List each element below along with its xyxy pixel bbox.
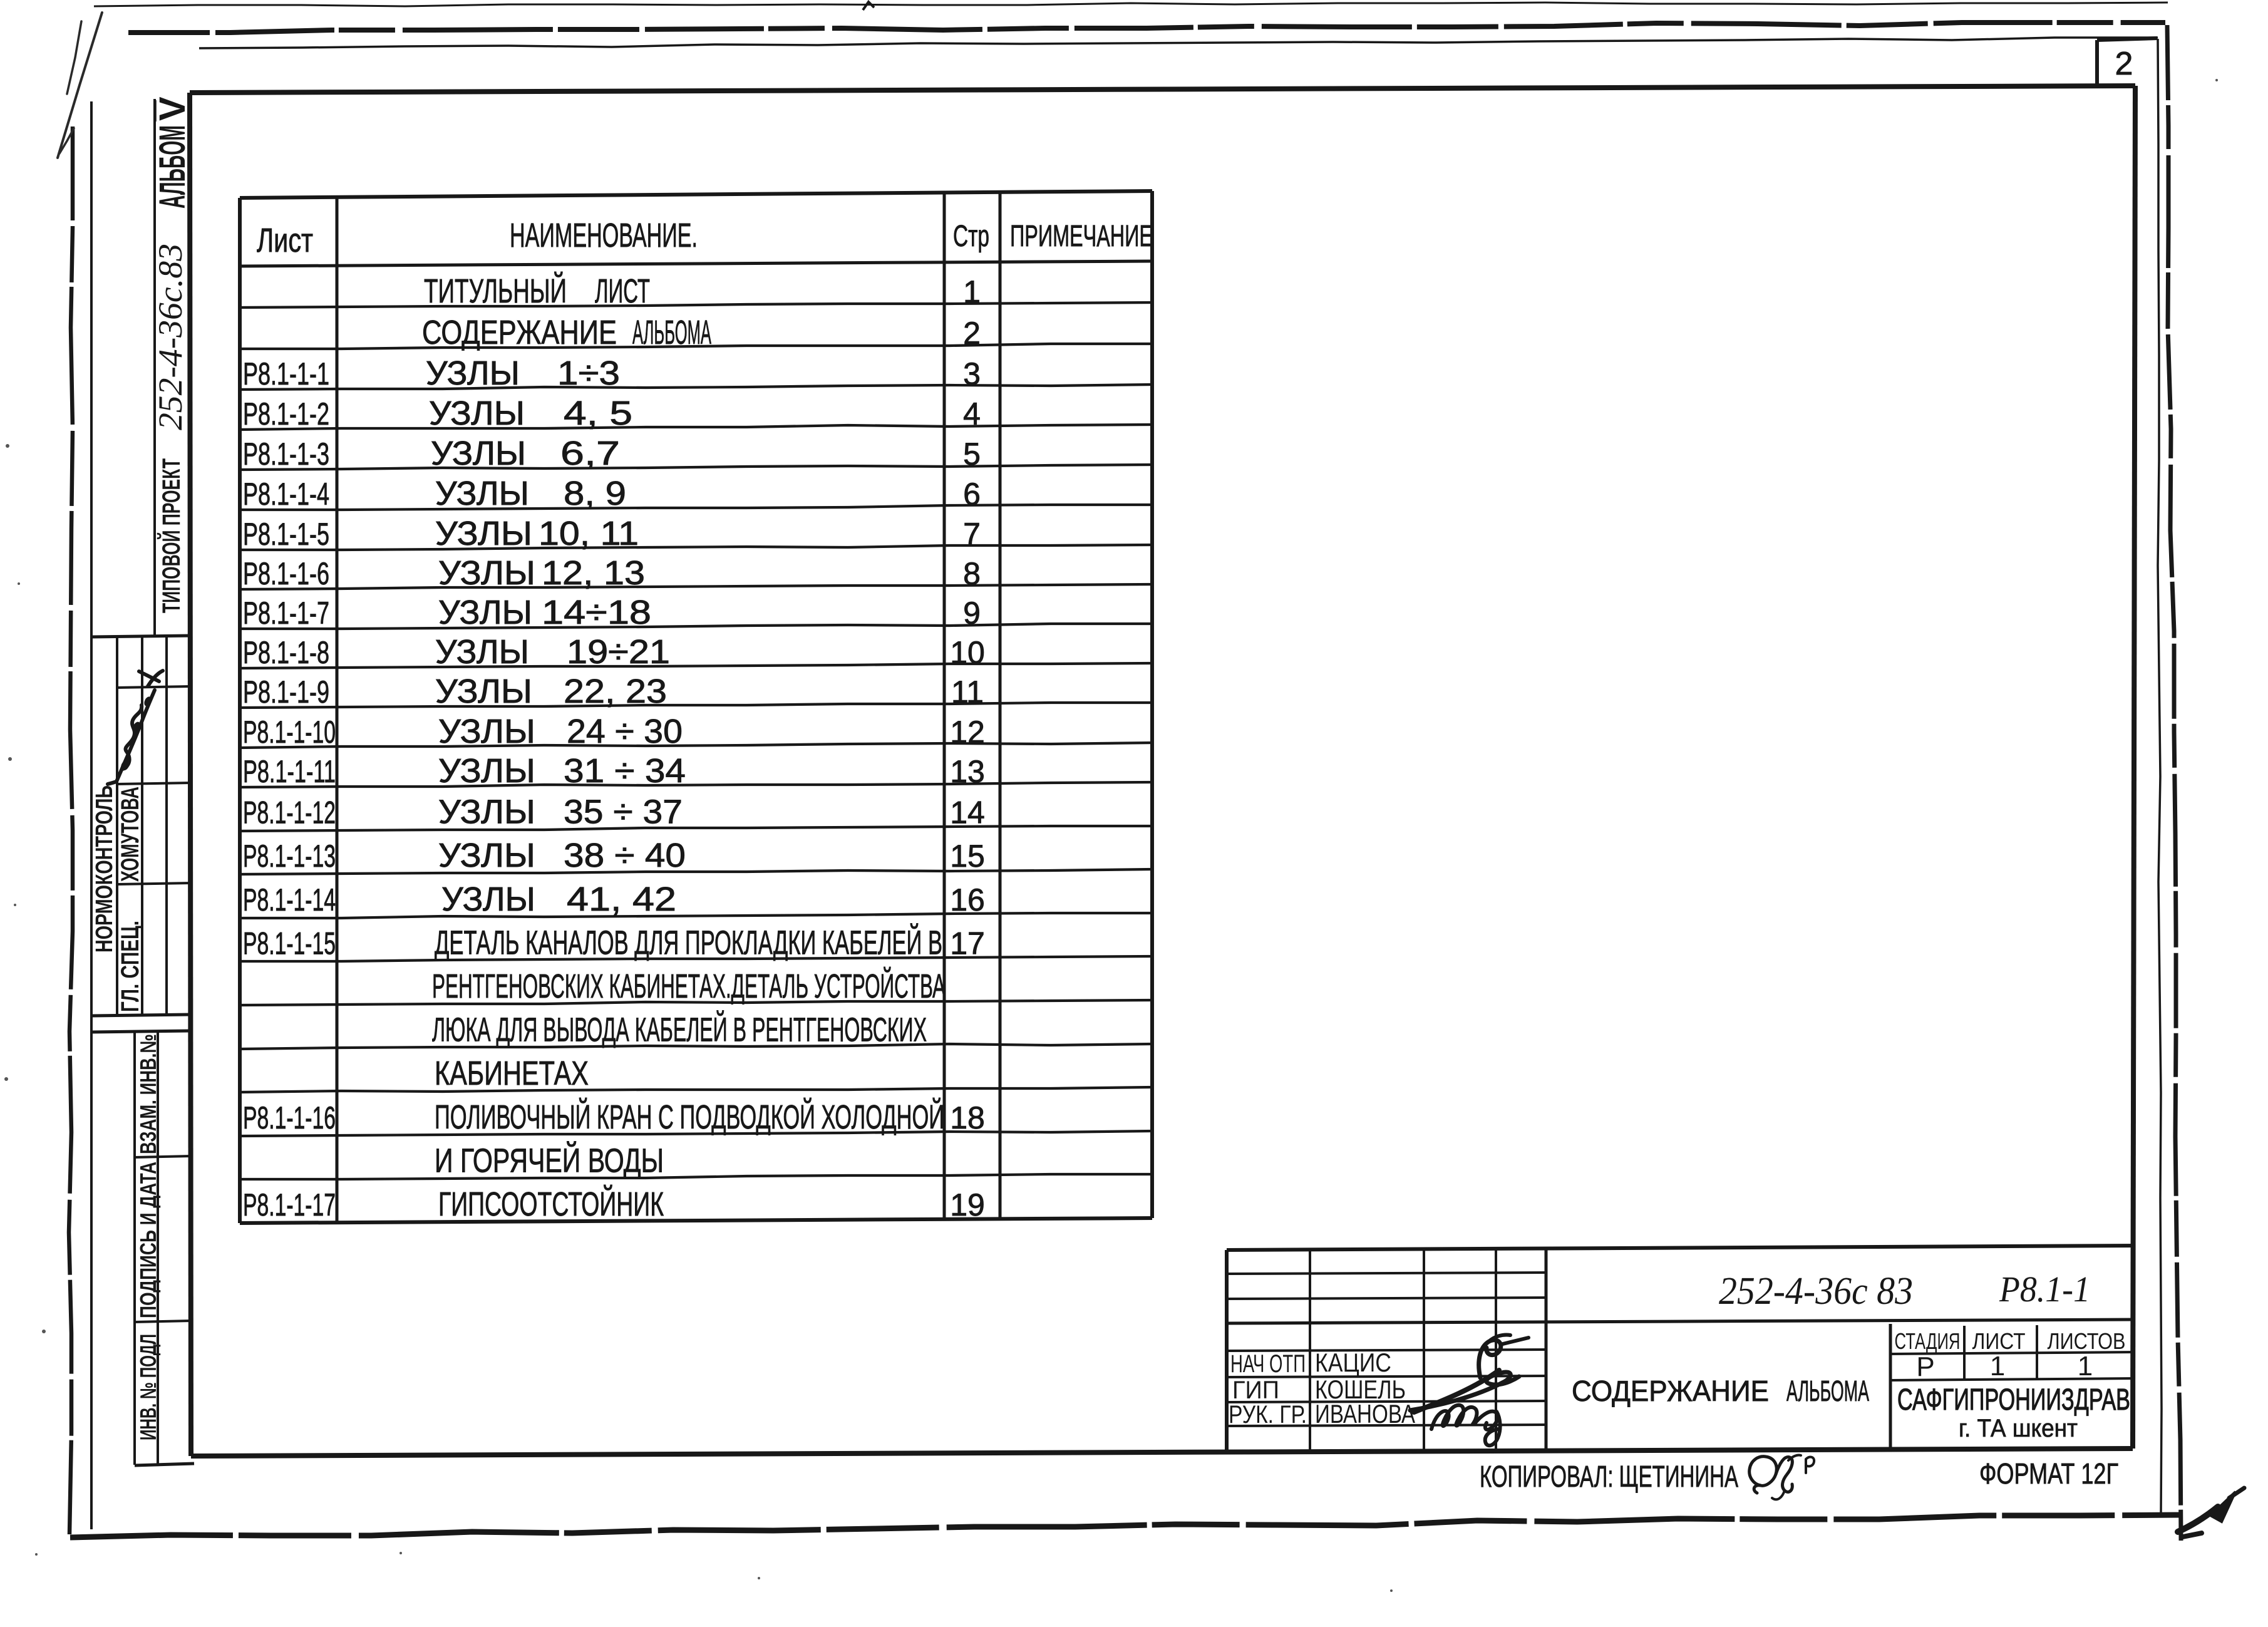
svg-text:ЛЮКА ДЛЯ ВЫВОДА КАБЕЛЕЙ В РЕНТ: ЛЮКА ДЛЯ ВЫВОДА КАБЕЛЕЙ В РЕНТГЕНОВСКИХ [432, 1011, 927, 1049]
svg-text:1: 1 [2078, 1351, 2093, 1382]
svg-text:УЗЛЫ: УЗЛЫ [431, 435, 526, 472]
svg-text:ГИПСООТСТОЙНИК: ГИПСООТСТОЙНИК [438, 1185, 664, 1223]
svg-text:16: 16 [950, 882, 985, 917]
svg-text:19: 19 [950, 1187, 985, 1222]
svg-text:ЛИСТ: ЛИСТ [1972, 1328, 2026, 1354]
svg-text:УЗЛЫ: УЗЛЫ [429, 395, 525, 432]
svg-text:ПРИМЕЧАНИЕ: ПРИМЕЧАНИЕ [1010, 220, 1153, 253]
svg-text:Р8.1-1-16: Р8.1-1-16 [243, 1100, 336, 1135]
svg-text:2: 2 [2115, 46, 2133, 82]
svg-text:УЗЛЫ: УЗЛЫ [435, 515, 532, 552]
svg-text:УЗЛЫ: УЗЛЫ [426, 354, 520, 392]
svg-text:3: 3 [963, 356, 981, 391]
svg-text:УЗЛЫ: УЗЛЫ [438, 594, 532, 631]
svg-text:УЗЛЫ: УЗЛЫ [438, 713, 535, 750]
svg-text:Р8.1-1-4: Р8.1-1-4 [243, 477, 329, 512]
svg-text:14: 14 [950, 795, 985, 830]
svg-text:НАИМЕНОВАНИЕ.: НАИМЕНОВАНИЕ. [510, 217, 698, 254]
svg-text:УЗЛЫ: УЗЛЫ [438, 554, 535, 592]
svg-text:31 ÷ 34: 31 ÷ 34 [564, 752, 686, 790]
svg-text:35 ÷ 37: 35 ÷ 37 [564, 793, 683, 831]
svg-text:И ГОРЯЧЕЙ ВОДЫ: И ГОРЯЧЕЙ ВОДЫ [435, 1141, 664, 1179]
svg-text:4: 4 [963, 396, 981, 431]
svg-text:Р8.1-1-9: Р8.1-1-9 [243, 674, 329, 710]
svg-text:ПОЛИВОЧНЫЙ КРАН С ПОДВОДКОЙ ХО: ПОЛИВОЧНЫЙ КРАН С ПОДВОДКОЙ ХОЛОДНОЙ [435, 1098, 944, 1136]
svg-text:Р8.1-1-11: Р8.1-1-11 [243, 754, 336, 789]
svg-text:19÷21: 19÷21 [567, 633, 670, 671]
svg-text:41, 42: 41, 42 [567, 881, 676, 918]
svg-text:Р8.1-1-3: Р8.1-1-3 [243, 436, 329, 472]
svg-text:Р8.1-1-15: Р8.1-1-15 [243, 926, 336, 961]
svg-text:ДЕТАЛЬ КАНАЛОВ ДЛЯ ПРОКЛАДКИ К: ДЕТАЛЬ КАНАЛОВ ДЛЯ ПРОКЛАДКИ КАБЕЛЕЙ В [435, 923, 942, 961]
svg-text:ПОДПИСЬ И ДАТА: ПОДПИСЬ И ДАТА [135, 1162, 161, 1318]
svg-text:13: 13 [950, 754, 985, 789]
svg-text:Р8.1-1-13: Р8.1-1-13 [243, 839, 336, 874]
svg-text:Стр: Стр [953, 220, 989, 253]
svg-text:г. ТА шкент: г. ТА шкент [1959, 1415, 2078, 1442]
svg-text:1÷3: 1÷3 [557, 354, 620, 392]
svg-text:18: 18 [950, 1100, 985, 1135]
svg-text:ИНВ. № ПОДЛ: ИНВ. № ПОДЛ [135, 1334, 161, 1440]
svg-text:СТАДИЯ: СТАДИЯ [1895, 1328, 1961, 1354]
svg-text:УЗЛЫ: УЗЛЫ [435, 633, 529, 671]
svg-text:СОДЕРЖАНИЕ: СОДЕРЖАНИЕ [422, 314, 617, 351]
svg-text:Р8.1-1-7: Р8.1-1-7 [243, 596, 329, 631]
svg-text:Р8.1-1-8: Р8.1-1-8 [243, 635, 329, 670]
svg-text:Р8.1-1-10: Р8.1-1-10 [243, 715, 336, 750]
svg-text:7: 7 [963, 517, 981, 552]
svg-text:Р8.1-1-6: Р8.1-1-6 [243, 556, 329, 591]
svg-text:8: 8 [963, 556, 981, 591]
svg-text:6,7: 6,7 [560, 435, 620, 472]
svg-text:252-4-36с.83: 252-4-36с.83 [152, 244, 189, 430]
svg-text:Р8.1-1-12: Р8.1-1-12 [243, 795, 336, 830]
svg-text:4, 5: 4, 5 [564, 395, 632, 432]
svg-text:9: 9 [963, 596, 981, 631]
svg-text:УЗЛЫ: УЗЛЫ [438, 752, 535, 790]
svg-text:УЗЛЫ: УЗЛЫ [435, 475, 529, 512]
svg-text:КОПИРОВАЛ: ЩЕТИНИНА: КОПИРОВАЛ: ЩЕТИНИНА [1480, 1460, 1738, 1494]
svg-text:5: 5 [963, 436, 981, 472]
svg-text:Р8.1-1-5: Р8.1-1-5 [243, 517, 329, 552]
svg-text:11: 11 [951, 674, 984, 710]
svg-text:КАЦИС: КАЦИС [1315, 1348, 1391, 1377]
svg-text:10: 10 [950, 635, 985, 670]
svg-text:17: 17 [950, 926, 985, 961]
svg-text:15: 15 [950, 839, 985, 874]
svg-text:8, 9: 8, 9 [564, 475, 626, 512]
svg-text:АЛЬБОМ: АЛЬБОМ [152, 125, 193, 209]
svg-text:РУК. ГР.: РУК. ГР. [1229, 1401, 1307, 1428]
svg-text:ТИТУЛЬНЫЙ: ТИТУЛЬНЫЙ [424, 272, 567, 310]
svg-text:V: V [152, 96, 193, 121]
svg-text:ГИП: ГИП [1232, 1376, 1279, 1404]
svg-text:6: 6 [963, 477, 981, 512]
svg-text:Р8.1-1-2: Р8.1-1-2 [243, 396, 329, 431]
svg-text:РЕНТГЕНОВСКИХ КАБИНЕТАХ.ДЕТАЛЬ: РЕНТГЕНОВСКИХ КАБИНЕТАХ.ДЕТАЛЬ УСТРОЙСТВ… [432, 967, 946, 1005]
svg-text:АЛЬБОМА: АЛЬБОМА [632, 314, 711, 351]
svg-text:1: 1 [963, 274, 981, 309]
svg-text:22, 23: 22, 23 [564, 673, 667, 710]
svg-text:12, 13: 12, 13 [542, 554, 645, 592]
svg-text:ГЛ. СПЕЦ.: ГЛ. СПЕЦ. [116, 921, 144, 1012]
svg-text:252-4-36с 83: 252-4-36с 83 [1719, 1270, 1913, 1313]
svg-text:АЛЬБОМА: АЛЬБОМА [1786, 1375, 1869, 1407]
svg-text:Р8.1-1-14: Р8.1-1-14 [243, 882, 336, 917]
svg-text:2: 2 [963, 316, 981, 351]
svg-text:ТИПОВОЙ ПРОЕКТ: ТИПОВОЙ ПРОЕКТ [157, 458, 185, 613]
svg-text:САФГИПРОНИИЗДРАВ: САФГИПРОНИИЗДРАВ [1897, 1383, 2130, 1417]
svg-text:ИВАНОВА: ИВАНОВА [1315, 1399, 1415, 1428]
svg-text:14÷18: 14÷18 [542, 594, 651, 631]
svg-text:1: 1 [1990, 1351, 2005, 1382]
svg-text:38 ÷ 40: 38 ÷ 40 [564, 837, 686, 874]
svg-text:ФОРМАТ 12Г: ФОРМАТ 12Г [1979, 1457, 2118, 1490]
svg-text:Р8.1-1: Р8.1-1 [1999, 1269, 2090, 1309]
svg-text:ВЗАМ. ИНВ.№: ВЗАМ. ИНВ.№ [135, 1034, 161, 1154]
svg-text:24 ÷ 30: 24 ÷ 30 [567, 713, 683, 750]
svg-text:КАБИНЕТАХ: КАБИНЕТАХ [435, 1055, 589, 1092]
svg-text:СОДЕРЖАНИЕ: СОДЕРЖАНИЕ [1572, 1375, 1769, 1407]
svg-text:ЛИСТ: ЛИСТ [595, 272, 650, 310]
svg-text:УЗЛЫ: УЗЛЫ [438, 793, 535, 831]
svg-text:Р8.1-1-17: Р8.1-1-17 [243, 1187, 336, 1222]
svg-text:Р8.1-1-1: Р8.1-1-1 [243, 356, 329, 391]
svg-text:УЗЛЫ: УЗЛЫ [435, 673, 532, 710]
svg-text:НОРМОКОНТРОЛЬ: НОРМОКОНТРОЛЬ [91, 785, 118, 953]
svg-text:УЗЛЫ: УЗЛЫ [441, 881, 535, 918]
svg-text:ЛИСТОВ: ЛИСТОВ [2048, 1328, 2126, 1354]
svg-text:УЗЛЫ: УЗЛЫ [438, 837, 535, 874]
svg-text:12: 12 [950, 715, 985, 750]
svg-text:ХОМУТОВА: ХОМУТОВА [116, 787, 144, 882]
svg-text:Лист: Лист [257, 222, 313, 259]
svg-text:10, 11: 10, 11 [539, 515, 639, 552]
svg-text:Р: Р [1916, 1351, 1934, 1382]
svg-text:НАЧ ОТП: НАЧ ОТП [1230, 1350, 1306, 1378]
